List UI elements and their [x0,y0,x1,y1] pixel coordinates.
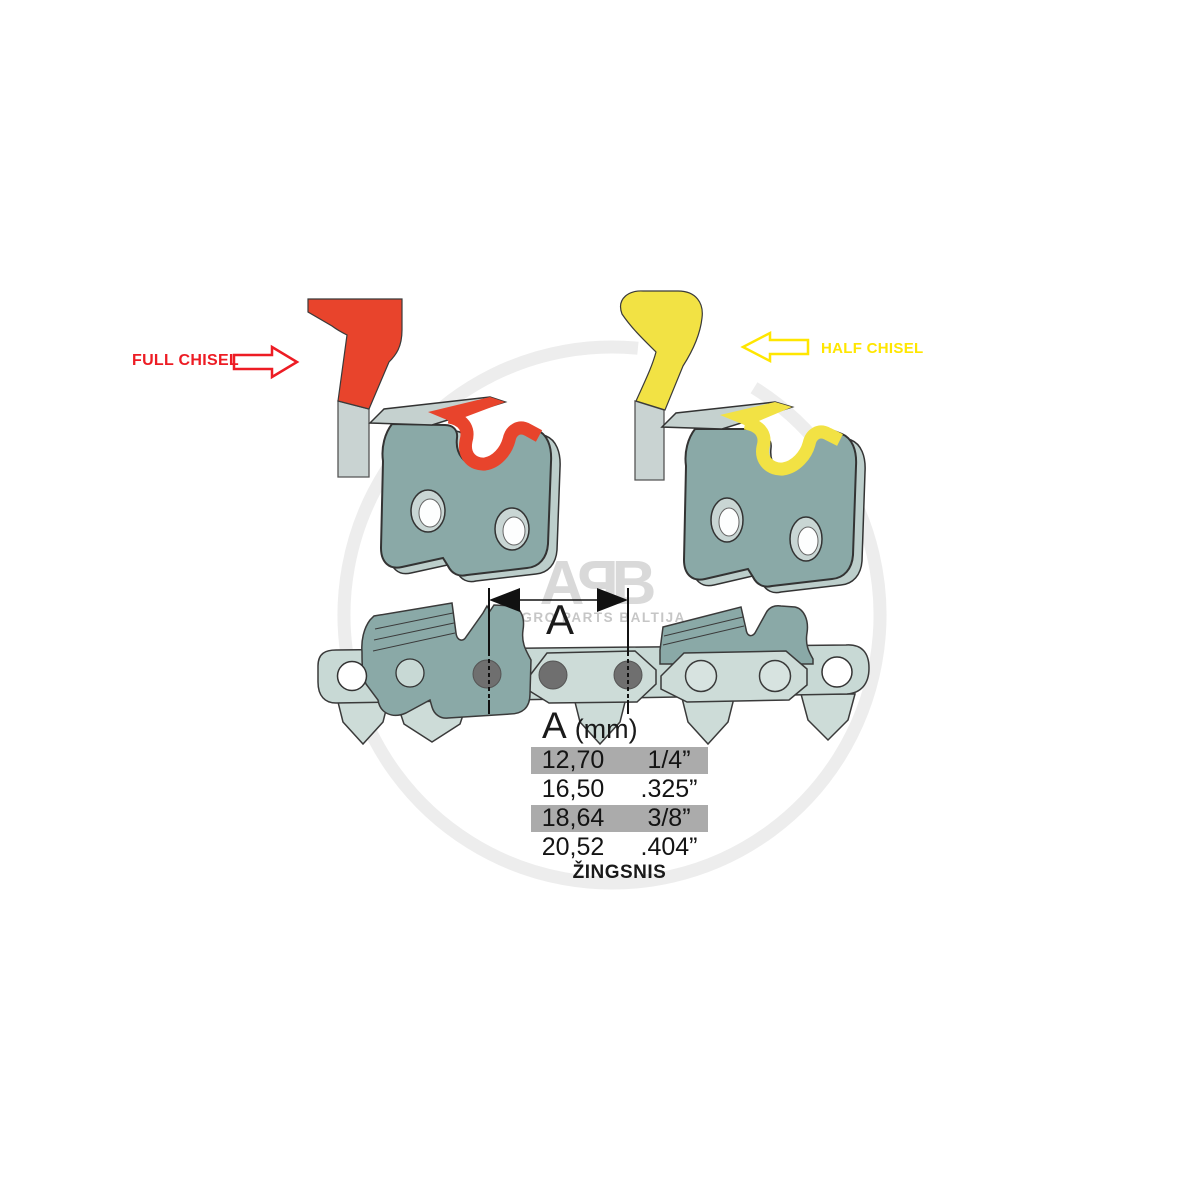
watermark-subtitle: AGRO PARTS BALTIJA [510,610,686,625]
pitch-table-row: 16,50 .325” [531,776,708,803]
chainsaw-chain-pitch-diagram: A P B AGRO PARTS BALTIJA [0,0,1188,1188]
chain-cutter-left [362,603,531,718]
pitch-inch-value: .325” [630,775,708,804]
rivet-hole-inner [719,508,739,536]
pitch-table: 12,70 1/4” 16,50 .325” 18,64 3/8” 20,52 … [531,747,708,863]
rivet-hole-inner [503,517,525,545]
strap-hole [760,661,791,692]
pitch-table-header-unit: (mm) [575,714,638,745]
rivet-hole-inner [419,499,441,527]
pitch-mm-value: 12,70 [537,746,609,775]
pitch-table-caption: ŽINGSNIS [531,862,708,884]
pitch-table-header-symbol: A [542,705,567,747]
pitch-mm-value: 16,50 [537,775,609,804]
pitch-table-header: A (mm) [542,705,638,747]
pitch-mm-value: 18,64 [537,804,609,833]
pitch-inch-value: 1/4” [630,746,708,775]
full-chisel-label: FULL CHISEL [132,352,239,370]
rivet [473,660,501,688]
pitch-table-row: 12,70 1/4” [531,747,708,774]
half-chisel-profile-stem [635,401,664,480]
pitch-mm-value: 20,52 [537,833,609,862]
strap-end-hole [338,662,367,691]
pitch-dimension-label: A [540,596,580,644]
strap-hole [686,661,717,692]
rivet-hole-inner [798,527,818,555]
pitch-table-row: 18,64 3/8” [531,805,708,832]
full-chisel-profile-shape [308,299,402,409]
half-chisel-cutter-3d [662,402,865,593]
cutter-hole [396,659,424,687]
strap-end-hole [822,657,852,687]
full-chisel-cutter-3d [370,397,560,582]
pitch-table-row: 20,52 .404” [531,834,708,861]
half-chisel-arrow-icon [743,333,808,361]
full-chisel-arrow-icon [234,347,297,377]
diagram-canvas: A P B AGRO PARTS BALTIJA [0,0,1188,1188]
half-chisel-label: HALF CHISEL [821,340,923,357]
pitch-inch-value: 3/8” [630,804,708,833]
watermark-letter: B [612,549,657,618]
pitch-inch-value: .404” [630,833,708,862]
full-chisel-profile-stem [338,401,369,477]
rivet [539,661,567,689]
